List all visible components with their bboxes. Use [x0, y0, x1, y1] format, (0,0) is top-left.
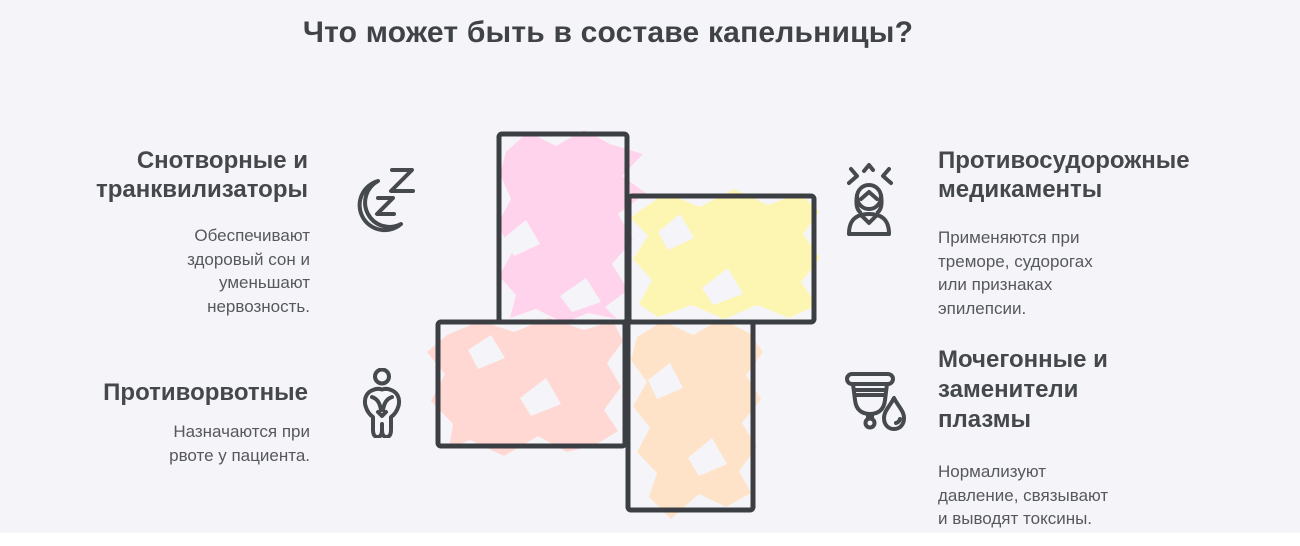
- section-title-diuretic: Мочегонные и заменители плазмы: [938, 345, 1178, 435]
- bottom-white-strip: [0, 533, 1300, 546]
- tremor-person-icon: [842, 162, 896, 236]
- infographic-canvas: Что может быть в составе капельницы? Сно…: [0, 0, 1300, 546]
- section-desc-sleep: Обеспечивают здоровый сон и уменьшают не…: [90, 224, 310, 318]
- page-title: Что может быть в составе капельницы?: [0, 16, 1216, 50]
- section-desc-antiemetic: Назначаются при рвоте у пациента.: [90, 420, 310, 467]
- moon-zzz-icon: [344, 160, 424, 238]
- section-title-anticonvulsant: Противосудорожные медикаменты: [938, 146, 1248, 204]
- section-title-sleep: Снотворные и транквилизаторы: [8, 146, 308, 204]
- orange-scribble-fill: [631, 319, 763, 519]
- section-desc-anticonvulsant: Применяются при треморе, судорогах или п…: [938, 226, 1168, 320]
- section-title-antiemetic: Противорвотные: [8, 378, 308, 407]
- salmon-scribble-fill: [427, 318, 623, 456]
- section-desc-diuretic: Нормализуют давление, связывают и выводя…: [938, 460, 1168, 531]
- pinwheel-diagram: [415, 115, 830, 530]
- nausea-person-icon: [360, 368, 404, 438]
- cup-droplet-icon: [842, 368, 908, 436]
